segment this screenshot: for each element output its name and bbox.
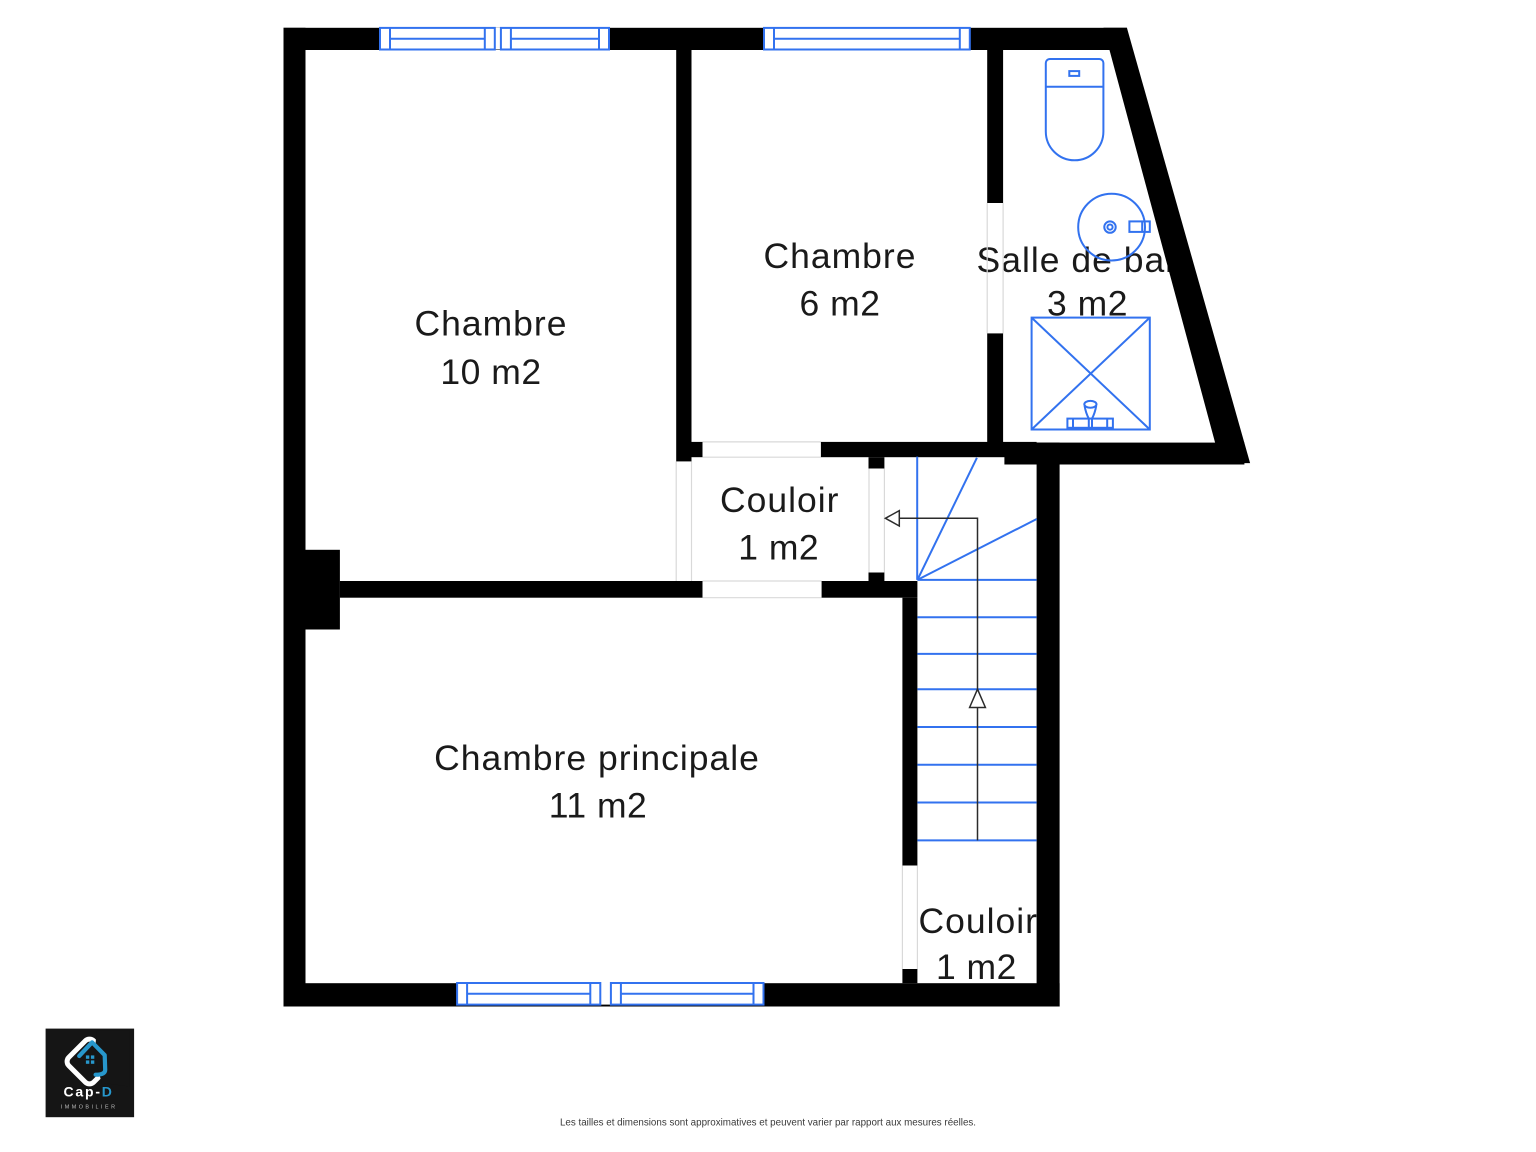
svg-text:10 m2: 10 m2 [440, 352, 541, 392]
svg-text:Couloir: Couloir [720, 480, 839, 520]
svg-text:11 m2: 11 m2 [549, 786, 648, 826]
svg-text:Couloir: Couloir [918, 901, 1037, 941]
svg-text:1 m2: 1 m2 [738, 528, 819, 568]
svg-text:Les tailles et dimensions sont: Les tailles et dimensions sont approxima… [560, 1118, 976, 1129]
svg-text:Salle de bain: Salle de bain [977, 240, 1195, 280]
svg-text:Chambre: Chambre [763, 236, 916, 276]
svg-text:IMMOBILIER: IMMOBILIER [61, 1105, 118, 1111]
svg-text:Chambre: Chambre [414, 304, 567, 344]
svg-text:Cap-D: Cap-D [63, 1083, 113, 1099]
svg-text:6 m2: 6 m2 [800, 284, 881, 324]
svg-text:Chambre principale: Chambre principale [434, 738, 760, 778]
svg-text:1 m2: 1 m2 [936, 947, 1017, 987]
